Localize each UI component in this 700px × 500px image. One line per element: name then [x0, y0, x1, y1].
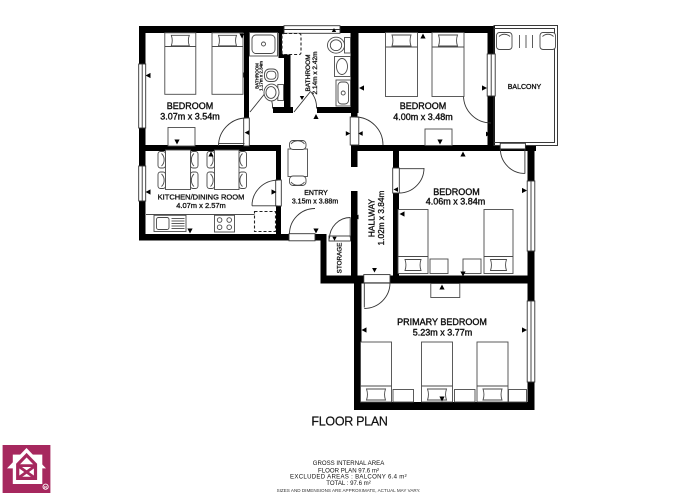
svg-text:SIZES AND DIMENSIONS ARE APPRO: SIZES AND DIMENSIONS ARE APPROXIMATE, AC… — [277, 488, 421, 493]
svg-text:3.15m x 3.88m: 3.15m x 3.88m — [292, 199, 338, 206]
svg-text:BEDROOM: BEDROOM — [400, 101, 447, 111]
svg-text:4.07m x 2.57m: 4.07m x 2.57m — [176, 201, 226, 210]
svg-text:GROSS INTERNAL AREA: GROSS INTERNAL AREA — [313, 460, 385, 467]
svg-text:3.07m x 3.54m: 3.07m x 3.54m — [160, 111, 220, 121]
svg-text:BALCONY: BALCONY — [508, 84, 542, 91]
svg-text:4.06m x 3.84m: 4.06m x 3.84m — [426, 197, 486, 207]
svg-text:TOTAL : 97.6 m²: TOTAL : 97.6 m² — [326, 480, 371, 487]
svg-text:R: R — [44, 485, 47, 490]
svg-text:ENTRY: ENTRY — [304, 190, 328, 197]
svg-text:5.23m x 3.77m: 5.23m x 3.77m — [413, 328, 473, 338]
svg-text:1.02m x 3.84m: 1.02m x 3.84m — [376, 190, 386, 245]
svg-text:2.14m x 2.42m: 2.14m x 2.42m — [312, 52, 319, 95]
svg-text:STORAGE: STORAGE — [337, 243, 344, 274]
svg-text:BEDROOM: BEDROOM — [167, 101, 214, 111]
svg-text:FLOOR PLAN: FLOOR PLAN — [311, 415, 387, 429]
svg-text:4.00m x 3.48m: 4.00m x 3.48m — [393, 112, 453, 122]
svg-text:BEDROOM: BEDROOM — [433, 187, 480, 197]
svg-text:PRIMARY BEDROOM: PRIMARY BEDROOM — [397, 317, 487, 327]
svg-text:1.17m x 2.34m: 1.17m x 2.34m — [259, 61, 264, 91]
